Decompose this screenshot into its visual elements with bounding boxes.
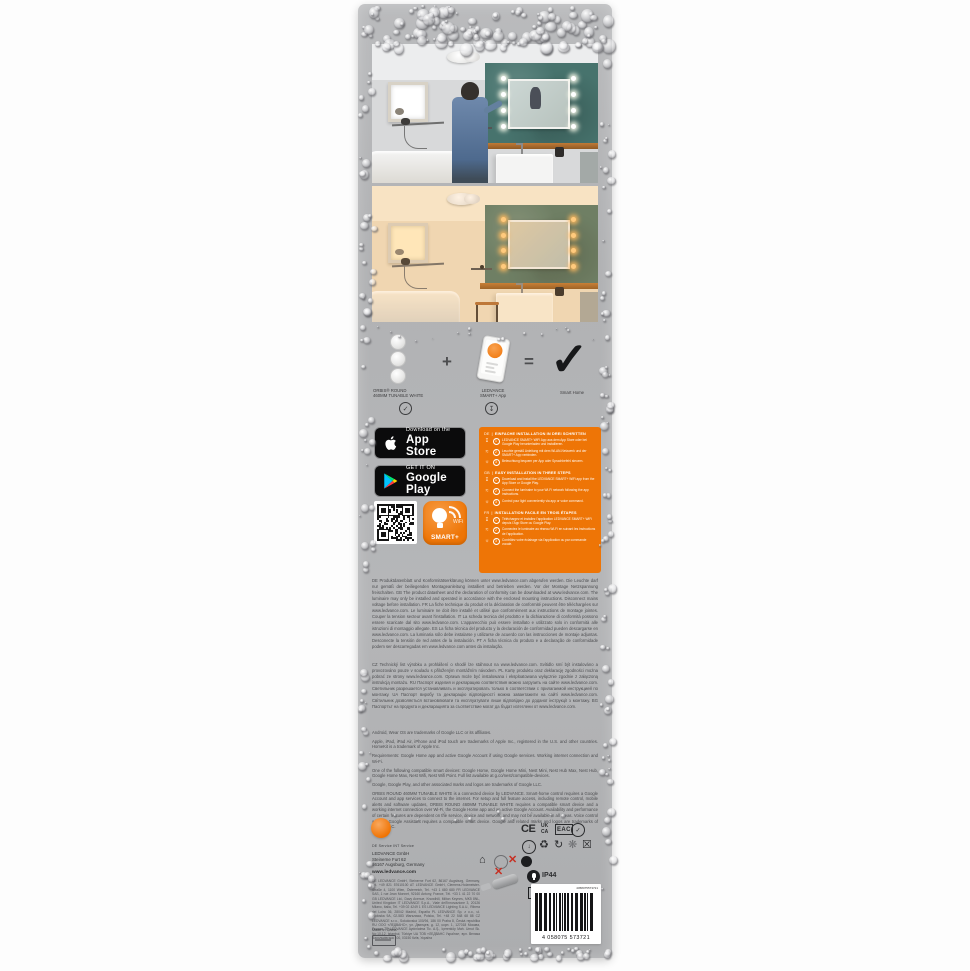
water-droplet (493, 13, 498, 18)
water-droplet (603, 319, 606, 322)
water-droplet (438, 7, 448, 18)
water-droplet (542, 34, 550, 41)
water-droplet (581, 9, 594, 24)
water-droplet (600, 166, 602, 169)
trademark-notice: Android, Wear OS are trademarks of Googl… (372, 730, 598, 736)
water-droplet (367, 81, 371, 84)
water-droplet (432, 25, 437, 30)
water-droplet (586, 950, 590, 954)
box-crossed-icon: ☒ (582, 839, 592, 851)
water-droplet (474, 34, 479, 39)
manufacturer-website: www.ledvance.com (372, 870, 416, 875)
ledvance-orange-dot-logo (371, 818, 391, 838)
water-droplet (485, 31, 491, 37)
water-droplet (602, 291, 606, 296)
water-droplet (475, 26, 481, 32)
water-droplet (359, 157, 362, 159)
photo-faucet (521, 143, 523, 154)
water-droplet (608, 124, 611, 127)
instruction-step: ≈2Leuchte gemäß Anleitung mit dem WLAN-N… (484, 449, 596, 457)
water-droplet (604, 817, 612, 824)
water-droplet (421, 5, 425, 8)
water-droplet (602, 310, 610, 317)
app-name-label: LEDVANCESMART+ App (470, 388, 516, 398)
instruction-step: ↧1LEDVANCE SMART+ WiFi App aus dem App S… (484, 438, 596, 446)
water-droplet (481, 947, 487, 953)
water-droplet (603, 743, 608, 748)
water-droplet (361, 365, 366, 369)
water-droplet (463, 31, 473, 41)
barcode-panel: 4058075573721 4 058075 573721 (531, 884, 601, 944)
water-droplet (562, 21, 572, 32)
water-droplet (363, 337, 372, 345)
water-droplet (367, 945, 370, 949)
google-play-logo-icon (382, 472, 400, 490)
water-droplet (364, 25, 374, 34)
water-droplet (536, 947, 542, 953)
instruction-step: ↧1Download and install the LEDVANCE SMAR… (484, 477, 596, 485)
water-droplet (476, 952, 486, 961)
water-droplet (371, 13, 374, 16)
water-droplet (400, 22, 404, 26)
water-droplet (600, 422, 609, 431)
water-droplet (607, 779, 613, 785)
instruction-section: DE|EINFACHE INSTALLATION IN DREI SCHRITT… (484, 432, 596, 466)
water-droplet (362, 297, 365, 300)
product-image-orbis-luminaires (390, 334, 406, 385)
photo-person-head (461, 82, 479, 100)
water-droplet (413, 7, 418, 11)
water-droplet (538, 954, 544, 961)
water-droplet (603, 59, 612, 68)
step-text: LEDVANCE SMART+ WiFi App aus dem App Sto… (502, 438, 596, 446)
water-droplet (608, 679, 613, 685)
product-package-back: + = ✓ ORBIS® ROUND460MM TUNABLE WHITE LE… (358, 4, 612, 958)
water-droplet (519, 948, 523, 952)
water-droplet (601, 617, 606, 622)
water-droplet (601, 416, 604, 419)
water-droplet (606, 707, 609, 711)
water-droplet (605, 949, 611, 956)
water-droplet (358, 708, 363, 713)
water-droplet (363, 567, 369, 573)
indoor-house-icon: ⌂ (479, 854, 486, 866)
water-droplet (359, 243, 364, 247)
instruction-section: FR|INSTALLATION FACILE EN TROIS ÉTAPES↧1… (484, 511, 596, 547)
water-droplet (361, 689, 367, 694)
water-droplet (522, 32, 533, 43)
water-droplet (603, 139, 608, 143)
black-dot-mark-icon (521, 856, 532, 867)
water-droplet (601, 39, 607, 44)
smartphone-app-icon (476, 335, 510, 383)
water-droplet (605, 773, 609, 776)
water-droplet (602, 186, 606, 189)
water-droplet (460, 27, 466, 32)
step-number: 2 (493, 527, 500, 534)
water-droplet (599, 35, 607, 42)
step-text: Leuchte gemäß Anleitung mit dem WLAN-Net… (502, 449, 596, 457)
water-droplet (605, 366, 607, 369)
photo-warm-light-tint (372, 186, 598, 322)
recycle-triangle-icon: ♻ (539, 839, 549, 851)
water-droplet (569, 12, 578, 20)
water-droplet (602, 827, 610, 836)
bulb-icon (432, 508, 447, 523)
service-contacts-line: DE Service INT Service (372, 844, 414, 848)
water-droplet (601, 539, 606, 543)
water-droplet (608, 520, 612, 523)
photo-window (388, 82, 428, 123)
water-droplet (572, 26, 580, 35)
water-droplet (492, 12, 500, 21)
trademark-notice: One of the following compatible smart de… (372, 768, 598, 779)
photo-sink (496, 154, 553, 183)
water-droplet (457, 332, 459, 334)
photo-shower-head (401, 118, 410, 125)
water-droplet (361, 32, 368, 38)
trademark-notices: Android, Wear OS are trademarks of Googl… (372, 730, 598, 833)
water-droplet (464, 949, 469, 955)
water-droplet (567, 948, 571, 951)
smart-plus-label: SMART+ (423, 534, 467, 541)
water-droplet (411, 35, 415, 38)
water-droplet (601, 312, 605, 316)
photo-shelf-object (555, 147, 564, 157)
water-droplet (362, 261, 367, 265)
water-droplet (473, 35, 480, 41)
water-droplet (439, 23, 446, 30)
water-droplet (605, 839, 612, 845)
water-droplet (364, 872, 372, 879)
water-droplet (486, 954, 491, 959)
water-droplet (607, 514, 612, 519)
water-droplet (432, 338, 434, 340)
water-droplet (608, 759, 611, 762)
water-droplet (599, 769, 605, 776)
water-droplet (417, 9, 430, 21)
step-text: Téléchargez et installez l'application L… (502, 517, 596, 525)
water-droplet (537, 21, 542, 26)
water-droplet (608, 768, 610, 771)
water-droplet (603, 536, 609, 542)
water-droplet (360, 170, 369, 179)
water-droplet (539, 31, 549, 42)
plus-sign: + (442, 352, 452, 372)
water-droplet (361, 542, 369, 550)
water-droplet (416, 30, 427, 40)
tidyman-icon: ↓ (522, 840, 536, 854)
barcode-ean-number: 4 058075 573721 (531, 935, 601, 941)
not-suitable-cross-icon: ✕ (508, 854, 517, 866)
water-droplet (468, 18, 476, 25)
water-droplet (363, 561, 369, 567)
water-droplet (458, 950, 466, 959)
water-droplet (587, 34, 591, 39)
material-mark-icon: ❋ (568, 839, 577, 851)
google-play-badge-title: Google Play (406, 472, 458, 496)
water-droplet (448, 30, 459, 41)
water-droplet (508, 32, 517, 41)
water-droplet (362, 804, 367, 810)
orbis-ceiling-lamp (447, 51, 476, 64)
water-droplet (413, 28, 423, 39)
water-droplet (608, 150, 616, 159)
water-droplet (609, 856, 618, 865)
water-droplet (602, 240, 605, 243)
water-droplet (608, 469, 612, 472)
water-droplet (538, 11, 551, 23)
lifestyle-photo-cool-white (372, 44, 598, 183)
water-droplet (565, 327, 567, 329)
water-droplet (605, 137, 608, 140)
wifi-wave-icon (449, 506, 461, 518)
water-droplet (607, 402, 615, 409)
orbis-luminaire-icon (390, 334, 406, 350)
conformity-mark-icon: ✓ (571, 823, 585, 837)
bulb-icon: ☼ (484, 459, 490, 465)
water-droplet (364, 439, 367, 442)
water-droplet (359, 515, 361, 517)
water-droplet (602, 665, 611, 673)
instruction-section-title: GB|EASY INSTALLATION IN THREE STEPS (484, 471, 596, 475)
water-droplet (361, 449, 365, 453)
water-droplet (608, 584, 617, 594)
water-droplet (359, 872, 361, 874)
water-droplet (577, 953, 585, 960)
no-external-dimmer-cross-icon: ✕ (494, 865, 503, 878)
step-text: Connectez le luminaire au réseau Wi-Fi e… (502, 527, 596, 535)
water-droplet (368, 417, 374, 424)
step-number: 2 (493, 449, 500, 456)
water-droplet (456, 12, 459, 15)
water-droplet (600, 703, 604, 707)
water-droplet (544, 947, 550, 952)
water-droplet (360, 325, 366, 331)
instruction-step: ↧1Téléchargez et installez l'application… (484, 517, 596, 525)
water-droplet (428, 13, 433, 18)
water-droplet (448, 7, 455, 13)
water-droplet (607, 177, 616, 185)
bulb-base-icon (437, 523, 443, 528)
barcode-bars (535, 893, 597, 931)
step-number: 3 (493, 499, 500, 506)
water-droplet (366, 464, 368, 466)
water-droplet (361, 674, 370, 682)
water-droplet (605, 271, 612, 277)
water-droplet (607, 755, 609, 757)
water-droplet (374, 951, 380, 956)
water-droplet (364, 937, 368, 940)
water-droplet (554, 16, 562, 24)
water-droplet (584, 27, 593, 38)
water-droplet (442, 22, 455, 35)
step-number: 1 (493, 517, 500, 524)
ce-mark: CE (521, 823, 535, 835)
water-droplet (529, 30, 542, 41)
step-number: 1 (493, 438, 500, 445)
smart-home-label: Smart Home (550, 390, 594, 395)
photo-window-sill-object (395, 108, 404, 115)
trademark-notice: Requirements: Google Home app and active… (372, 753, 598, 764)
step-text: Control your light conveniently via app … (502, 499, 584, 503)
water-droplet (537, 13, 541, 16)
water-droplet (468, 333, 471, 335)
qr-code (374, 501, 417, 544)
water-droplet (606, 405, 614, 414)
water-droplet (394, 947, 402, 956)
trademark-notice: Google, Google Play, and other associate… (372, 782, 598, 788)
water-droplet (425, 16, 429, 20)
water-droplet (364, 448, 372, 455)
water-droplet (599, 367, 608, 375)
water-droplet (362, 26, 365, 29)
lamp-recycle-circle-icon (527, 870, 540, 883)
instruction-section-title: FR|INSTALLATION FACILE EN TROIS ÉTAPES (484, 511, 596, 515)
water-droplet (604, 395, 608, 399)
mirror-bulb-strip-right (570, 76, 577, 129)
step-text: Contrôlez votre éclairage via l'applicat… (502, 538, 596, 546)
water-droplet (592, 339, 594, 341)
water-droplet (538, 15, 543, 21)
water-droplet (476, 948, 483, 954)
water-droplet (601, 888, 603, 890)
water-droplet (443, 6, 454, 18)
water-droplet (556, 955, 562, 962)
regulatory-fine-print-block-1: DE Produktdatenblatt und Konformitätserk… (372, 578, 598, 658)
instruction-step: ☼3Beleuchtung bequem per App oder Sprach… (484, 459, 596, 466)
download-icon: ↧ (484, 477, 490, 483)
water-droplet (393, 30, 399, 36)
water-droplet (603, 615, 607, 618)
water-droplet (607, 406, 613, 412)
water-droplet (359, 247, 364, 251)
water-droplet (486, 951, 490, 955)
water-droplet (365, 763, 369, 767)
water-droplet (605, 695, 614, 703)
water-droplet (606, 647, 610, 650)
water-droplet (358, 762, 367, 771)
photo-shower-hose (404, 126, 428, 149)
water-droplet (371, 547, 376, 552)
water-droplet (448, 6, 451, 9)
water-droplet (429, 7, 440, 18)
water-droplet (493, 31, 504, 41)
water-droplet (607, 808, 616, 817)
water-droplet (605, 467, 608, 470)
water-droplet (589, 12, 593, 16)
manufacturer-address: LEDVANCE GmbH Steinerne Furt 62 86167 Au… (372, 851, 424, 868)
water-droplet (606, 493, 612, 498)
trademark-notice: Apple, iPad, iPad Air, iPhone and iPod t… (372, 739, 598, 750)
water-droplet (604, 707, 612, 715)
water-droplet (600, 645, 605, 650)
instruction-section: GB|EASY INSTALLATION IN THREE STEPS↧1Dow… (484, 471, 596, 505)
wifi-icon: ≈ (484, 488, 490, 494)
water-droplet (589, 949, 592, 951)
smart-home-checkmark-icon: ✓ (550, 336, 589, 382)
water-droplet (377, 326, 379, 328)
download-icon: ↧ (484, 517, 490, 523)
lifestyle-photo-warm-white (372, 186, 598, 322)
water-droplet (391, 950, 398, 956)
water-droplet (416, 17, 429, 31)
water-droplet (492, 954, 496, 958)
water-droplet (557, 28, 566, 38)
download-icon: ↧ (484, 438, 490, 444)
ukca-mark: UKCA (541, 824, 548, 835)
water-droplet (360, 222, 369, 230)
water-droplet (361, 504, 369, 512)
water-droplet (433, 38, 436, 41)
water-droplet (423, 14, 435, 27)
orbis-luminaire-icon (390, 351, 406, 367)
water-droplet (576, 950, 583, 957)
wifi-icon: ≈ (484, 449, 490, 455)
water-droplet (399, 950, 407, 959)
equals-sign: = (524, 352, 534, 372)
water-droplet (583, 953, 590, 959)
step-text: Beleuchtung bequem per App oder Sprachbe… (502, 459, 583, 463)
water-droplet (608, 531, 614, 538)
water-droplet (363, 308, 372, 316)
water-droplet (567, 23, 576, 33)
water-droplet (602, 372, 609, 378)
water-droplet (360, 872, 368, 879)
water-droplet (530, 954, 539, 963)
water-droplet (360, 339, 364, 343)
water-droplet (364, 309, 372, 317)
water-droplet (369, 7, 379, 18)
step-number: 1 (493, 477, 500, 484)
water-droplet (433, 17, 440, 25)
water-droplet (374, 6, 380, 11)
water-droplet (547, 952, 553, 957)
water-droplet (603, 167, 609, 174)
water-droplet (469, 26, 472, 29)
installation-instructions-panel: DE|EINFACHE INSTALLATION IN DREI SCHRITT… (479, 427, 601, 573)
water-droplet (466, 28, 478, 38)
ip-rating-label: IP44 (542, 872, 556, 879)
instruction-step: ☼3Control your light conveniently via ap… (484, 499, 596, 506)
water-droplet (369, 34, 373, 38)
water-droplet (524, 952, 528, 956)
water-droplet (535, 947, 540, 952)
instruction-step: ≈2Connect the luminaire to your Wi-Fi ne… (484, 488, 596, 496)
water-droplet (359, 429, 368, 439)
water-droplet (520, 953, 523, 956)
water-droplet (528, 947, 532, 951)
water-droplet (602, 756, 605, 760)
water-droplet (399, 953, 409, 963)
compatibility-check-icon: ✓ (399, 402, 412, 415)
water-droplet (571, 949, 575, 953)
water-droplet (366, 777, 371, 783)
water-droplet (362, 899, 367, 903)
water-droplet (409, 9, 414, 15)
water-droplet (608, 374, 611, 377)
water-droplet (363, 214, 371, 222)
water-droplet (504, 949, 512, 958)
water-droplet (532, 25, 537, 29)
water-droplet (365, 702, 367, 704)
app-download-icon: ↧ (485, 402, 498, 415)
instruction-step: ≈2Connectez le luminaire au réseau Wi-Fi… (484, 527, 596, 535)
water-droplet (603, 15, 614, 28)
google-play-badge: GET IT ONGoogle Play (374, 465, 466, 497)
water-droplet (570, 6, 575, 11)
water-droplet (473, 954, 481, 961)
